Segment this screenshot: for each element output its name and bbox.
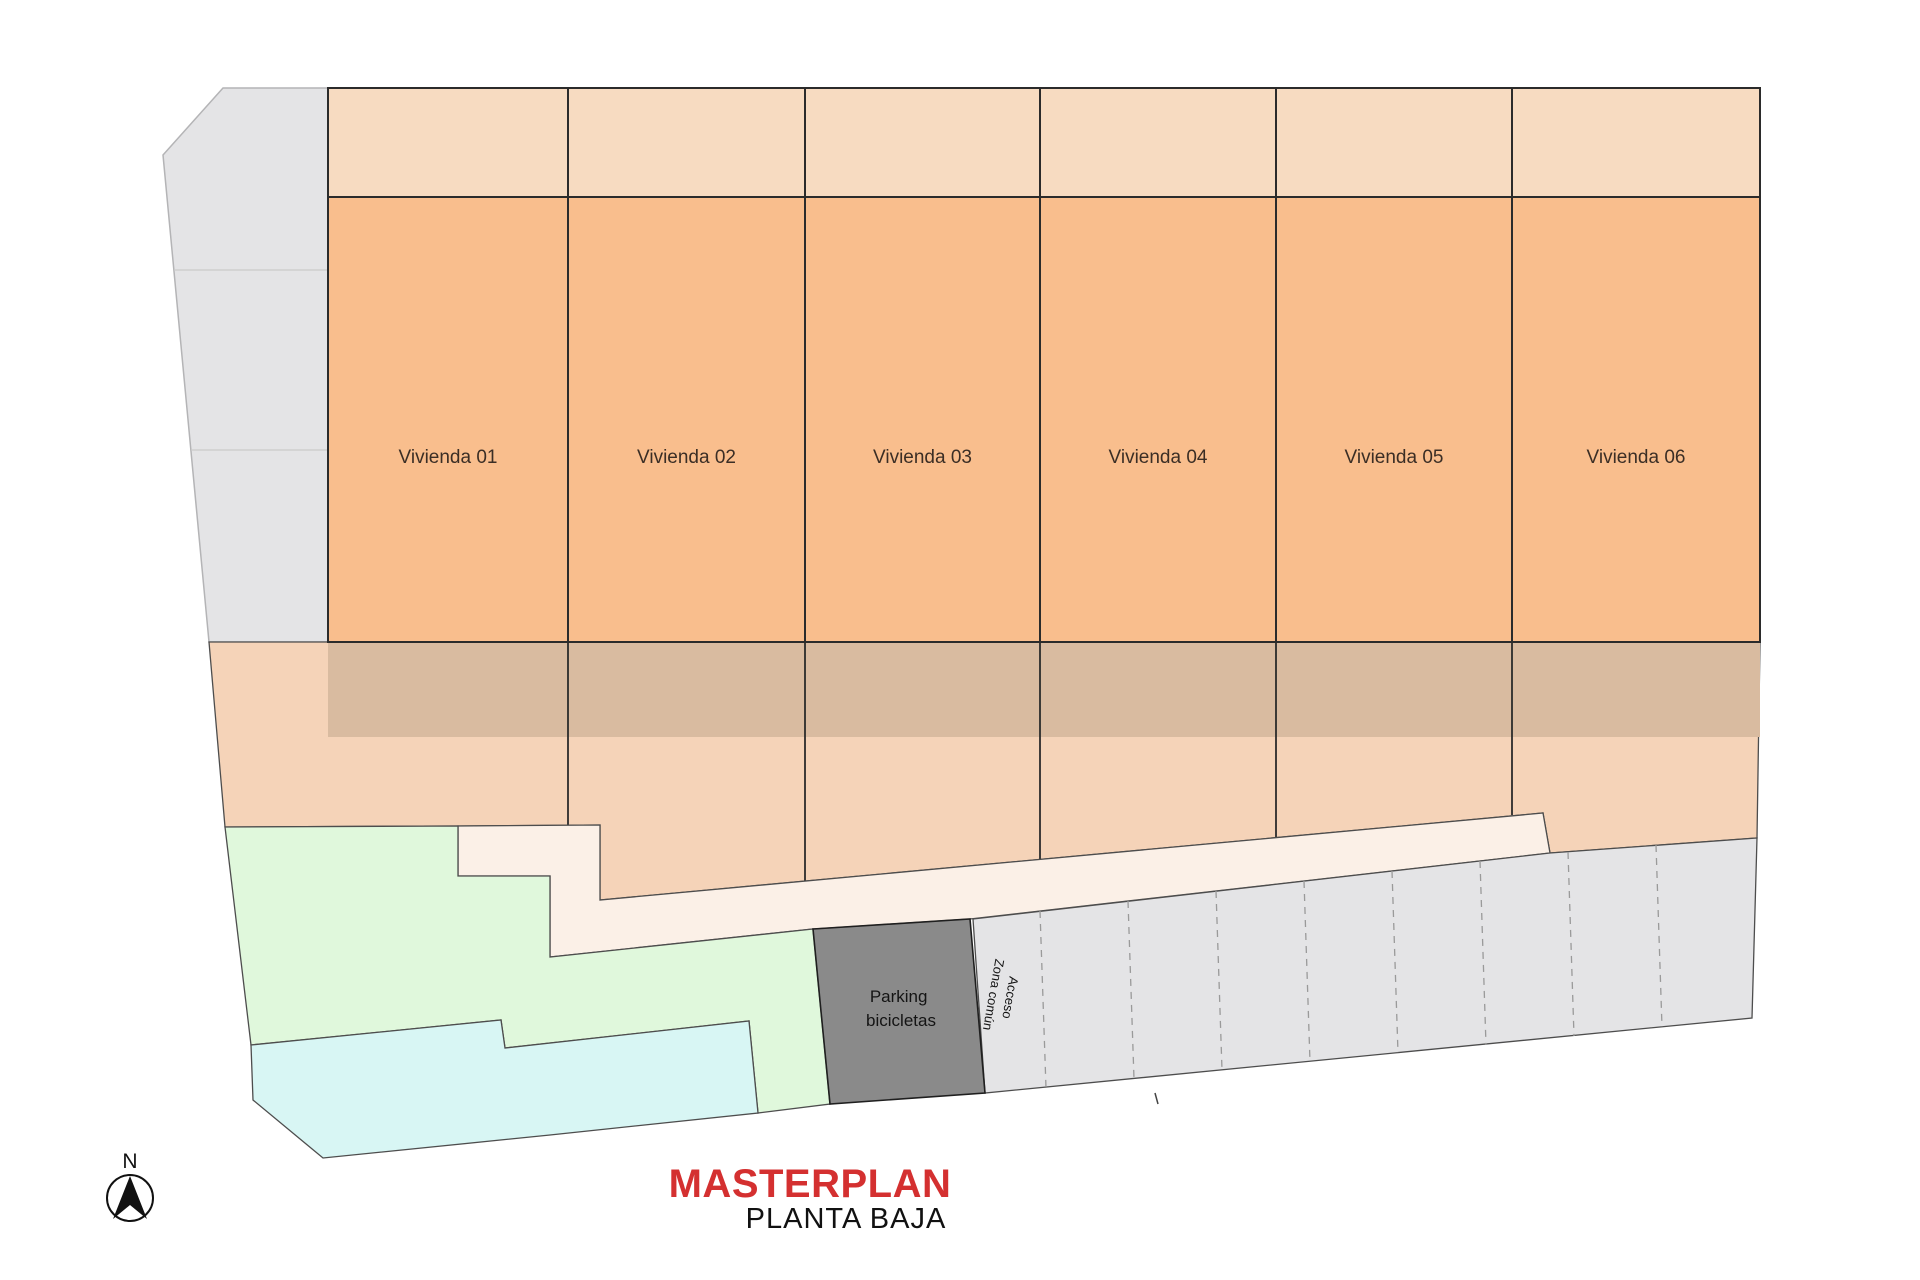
masterplan-title: MASTERPLAN bbox=[669, 1162, 952, 1206]
roof-strip-cell bbox=[1512, 88, 1760, 197]
roof-strip-cell bbox=[805, 88, 1040, 197]
vivienda-label: Vivienda 01 bbox=[399, 447, 498, 468]
roof-strip-row bbox=[328, 88, 1760, 197]
vivienda-unit bbox=[1512, 197, 1760, 642]
masterplan-page: Vivienda 01Vivienda 02Vivienda 03Viviend… bbox=[0, 0, 1920, 1280]
masterplan-canvas: Vivienda 01Vivienda 02Vivienda 03Viviend… bbox=[0, 0, 1920, 1280]
vivienda-label: Vivienda 03 bbox=[873, 447, 972, 468]
planta-baja-subtitle: PLANTA BAJA bbox=[746, 1203, 947, 1235]
survey-tick bbox=[1155, 1093, 1158, 1104]
vivienda-unit bbox=[1276, 197, 1512, 642]
north-compass: N bbox=[107, 1150, 153, 1221]
vivienda-unit bbox=[1040, 197, 1276, 642]
title-block: MASTERPLAN PLANTA BAJA bbox=[669, 1162, 952, 1235]
pool-area bbox=[251, 1020, 758, 1158]
roof-strip-cell bbox=[568, 88, 805, 197]
north-label: N bbox=[122, 1150, 137, 1173]
roof-strip-cell bbox=[1276, 88, 1512, 197]
vivienda-unit bbox=[328, 197, 568, 642]
roof-strip-cell bbox=[1040, 88, 1276, 197]
vivienda-unit bbox=[568, 197, 805, 642]
rear-patio-band bbox=[328, 642, 1760, 737]
site-left-strip bbox=[163, 88, 328, 642]
vivienda-row: Vivienda 01Vivienda 02Vivienda 03Viviend… bbox=[328, 197, 1760, 642]
vivienda-label: Vivienda 05 bbox=[1345, 447, 1444, 468]
vivienda-label: Vivienda 06 bbox=[1587, 447, 1686, 468]
vivienda-label: Vivienda 02 bbox=[637, 447, 736, 468]
roof-strip-cell bbox=[328, 88, 568, 197]
vivienda-unit bbox=[805, 197, 1040, 642]
vivienda-label: Vivienda 04 bbox=[1109, 447, 1208, 468]
